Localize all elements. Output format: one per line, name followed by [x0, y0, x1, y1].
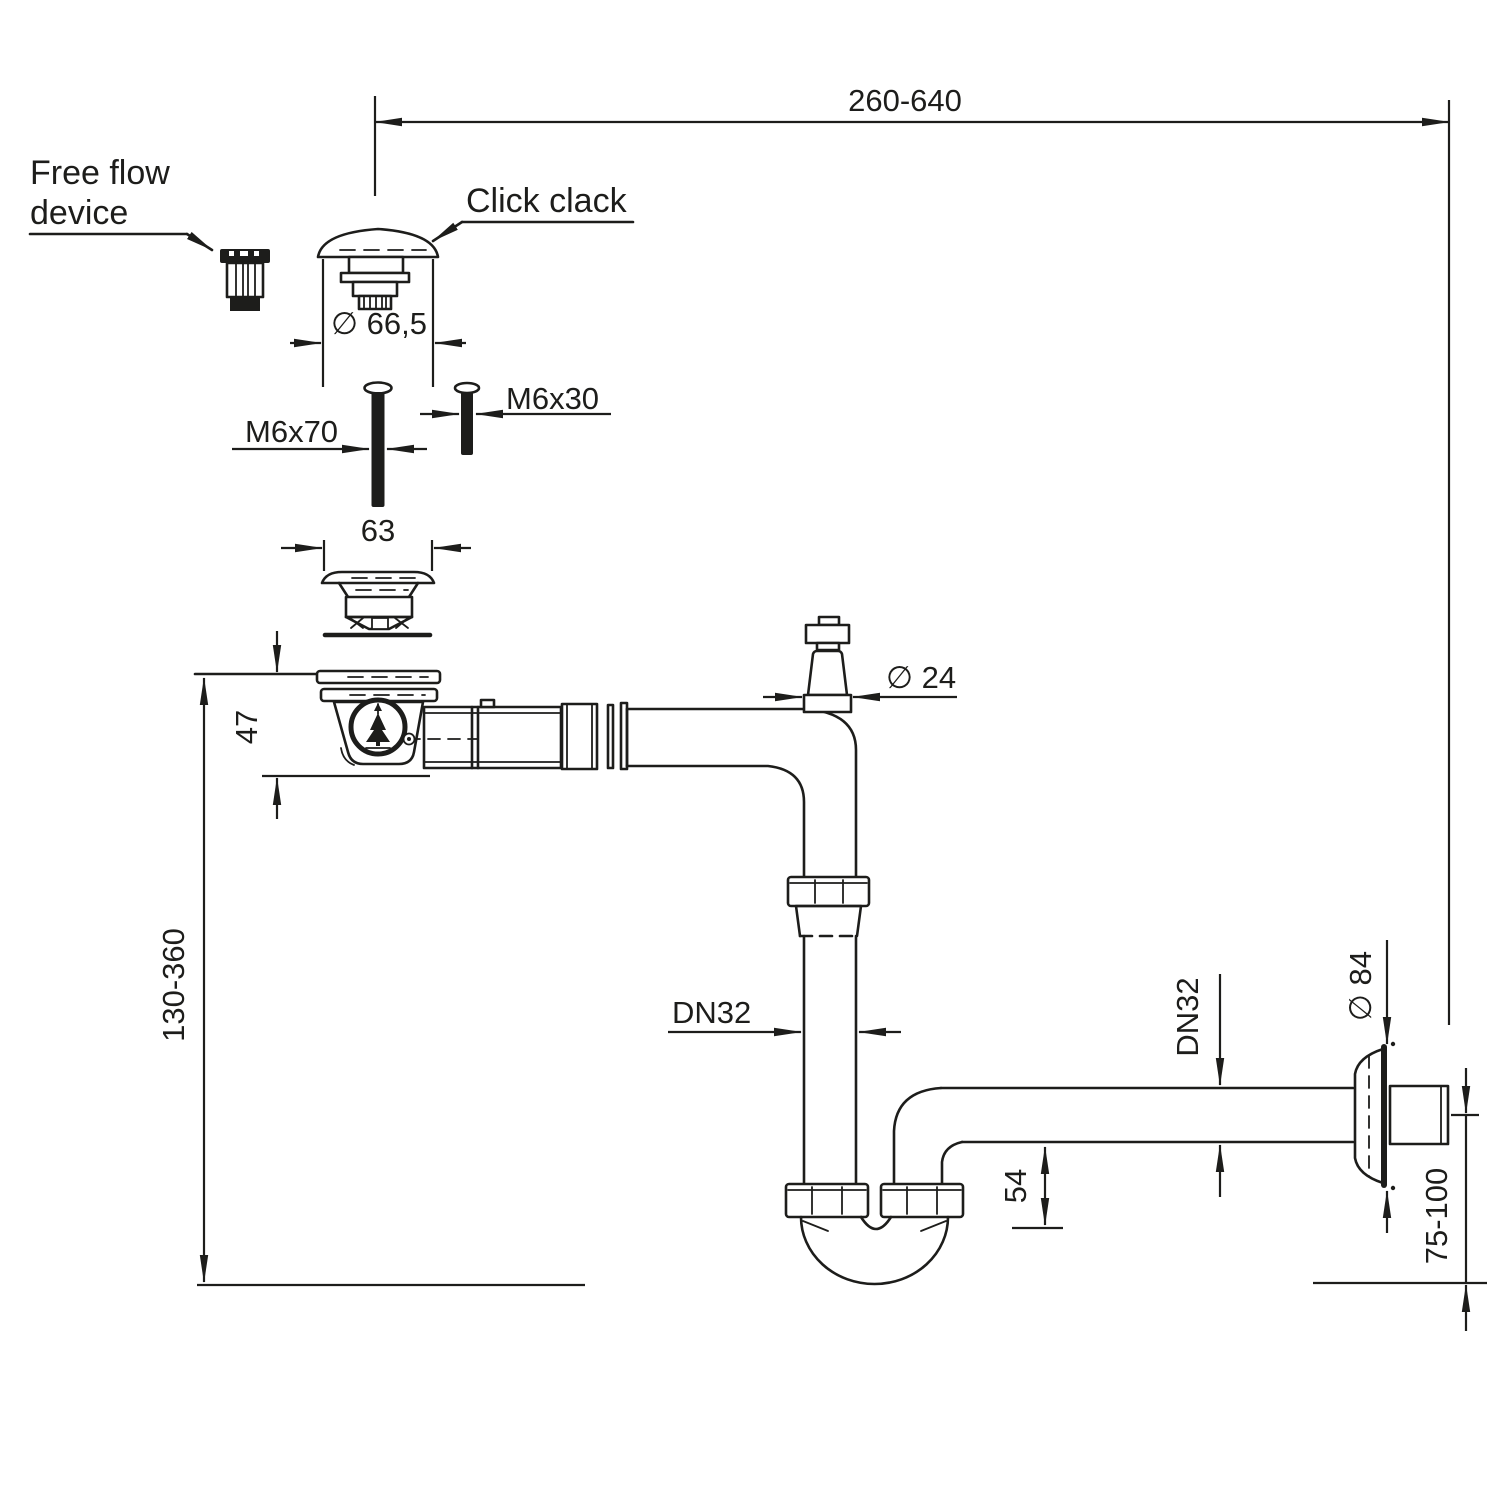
screw-m6x30-drawing: M6x30 [420, 381, 611, 455]
dim-wall-pipe-dn-text: DN32 [1170, 977, 1205, 1056]
strainer-basket-drawing [322, 572, 434, 635]
dim-trap-height-text: 54 [998, 1169, 1033, 1203]
dim-wall-range-text: 75-100 [1419, 1168, 1454, 1265]
dimension-wall-pipe-dn: DN32 [1170, 974, 1220, 1197]
vertical-pipe-drawing [788, 877, 869, 1184]
click-clack-label: Click clack [433, 182, 633, 241]
p-trap-drawing [786, 1088, 963, 1284]
dimension-pipe-dn: DN32 [668, 995, 901, 1032]
click-clack-cap-drawing [318, 229, 438, 309]
dimension-strainer-width: 63 [281, 513, 471, 571]
click-clack-label-text: Click clack [466, 182, 628, 220]
free-flow-device-drawing [220, 249, 270, 311]
free-flow-label-line2: device [30, 194, 128, 232]
dim-rosette-diameter-text: ∅ 84 [1343, 951, 1378, 1021]
dimension-top-span: 260-640 [375, 83, 1449, 1025]
wall-pipe-drawing [941, 1042, 1448, 1190]
dim-pipe-dn-text: DN32 [672, 995, 751, 1030]
dim-cap-diameter-text: ∅ 66,5 [331, 306, 427, 341]
dim-top-span-text: 260-640 [848, 83, 962, 118]
dim-body-height-text: 47 [229, 710, 264, 744]
technical-drawing-canvas: 260-640 Free flow device Click clack [0, 0, 1500, 1500]
free-flow-device-label: Free flow device [30, 154, 212, 250]
dim-screw-long-text: M6x70 [245, 414, 338, 449]
screw-m6x70-drawing: M6x70 [232, 383, 427, 508]
telescopic-arm-drawing [562, 703, 856, 877]
outlet-connector-drawing [804, 617, 851, 712]
dim-connector-diameter-text: ∅ 24 [886, 660, 956, 695]
dim-height-range-text: 130-360 [156, 928, 191, 1042]
free-flow-label-line1: Free flow [30, 154, 170, 192]
dim-strainer-width-text: 63 [361, 513, 395, 548]
dimension-trap-height: 54 [998, 1147, 1063, 1228]
dim-screw-short-text: M6x30 [506, 381, 599, 416]
dimension-connector-diameter: ∅ 24 [763, 660, 957, 697]
